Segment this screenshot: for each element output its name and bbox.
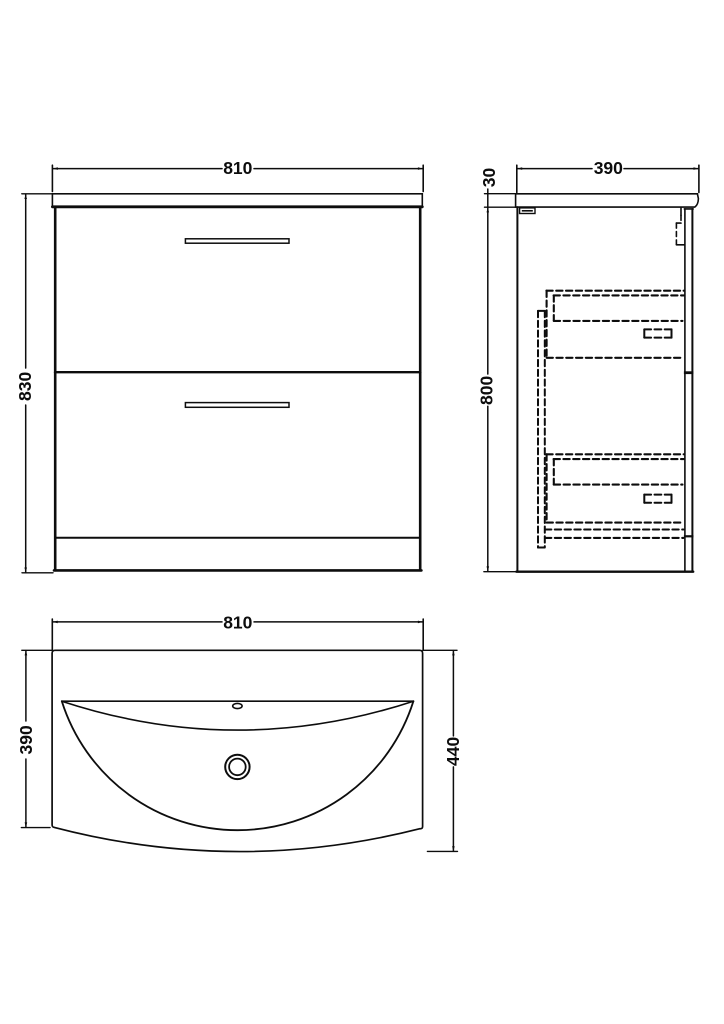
svg-text:810: 810 <box>223 158 252 178</box>
svg-text:440: 440 <box>443 737 463 766</box>
svg-text:830: 830 <box>15 372 35 401</box>
svg-text:800: 800 <box>477 376 497 405</box>
svg-text:390: 390 <box>594 158 623 178</box>
svg-text:30: 30 <box>479 168 499 188</box>
svg-text:810: 810 <box>223 613 252 633</box>
svg-text:390: 390 <box>16 725 36 754</box>
